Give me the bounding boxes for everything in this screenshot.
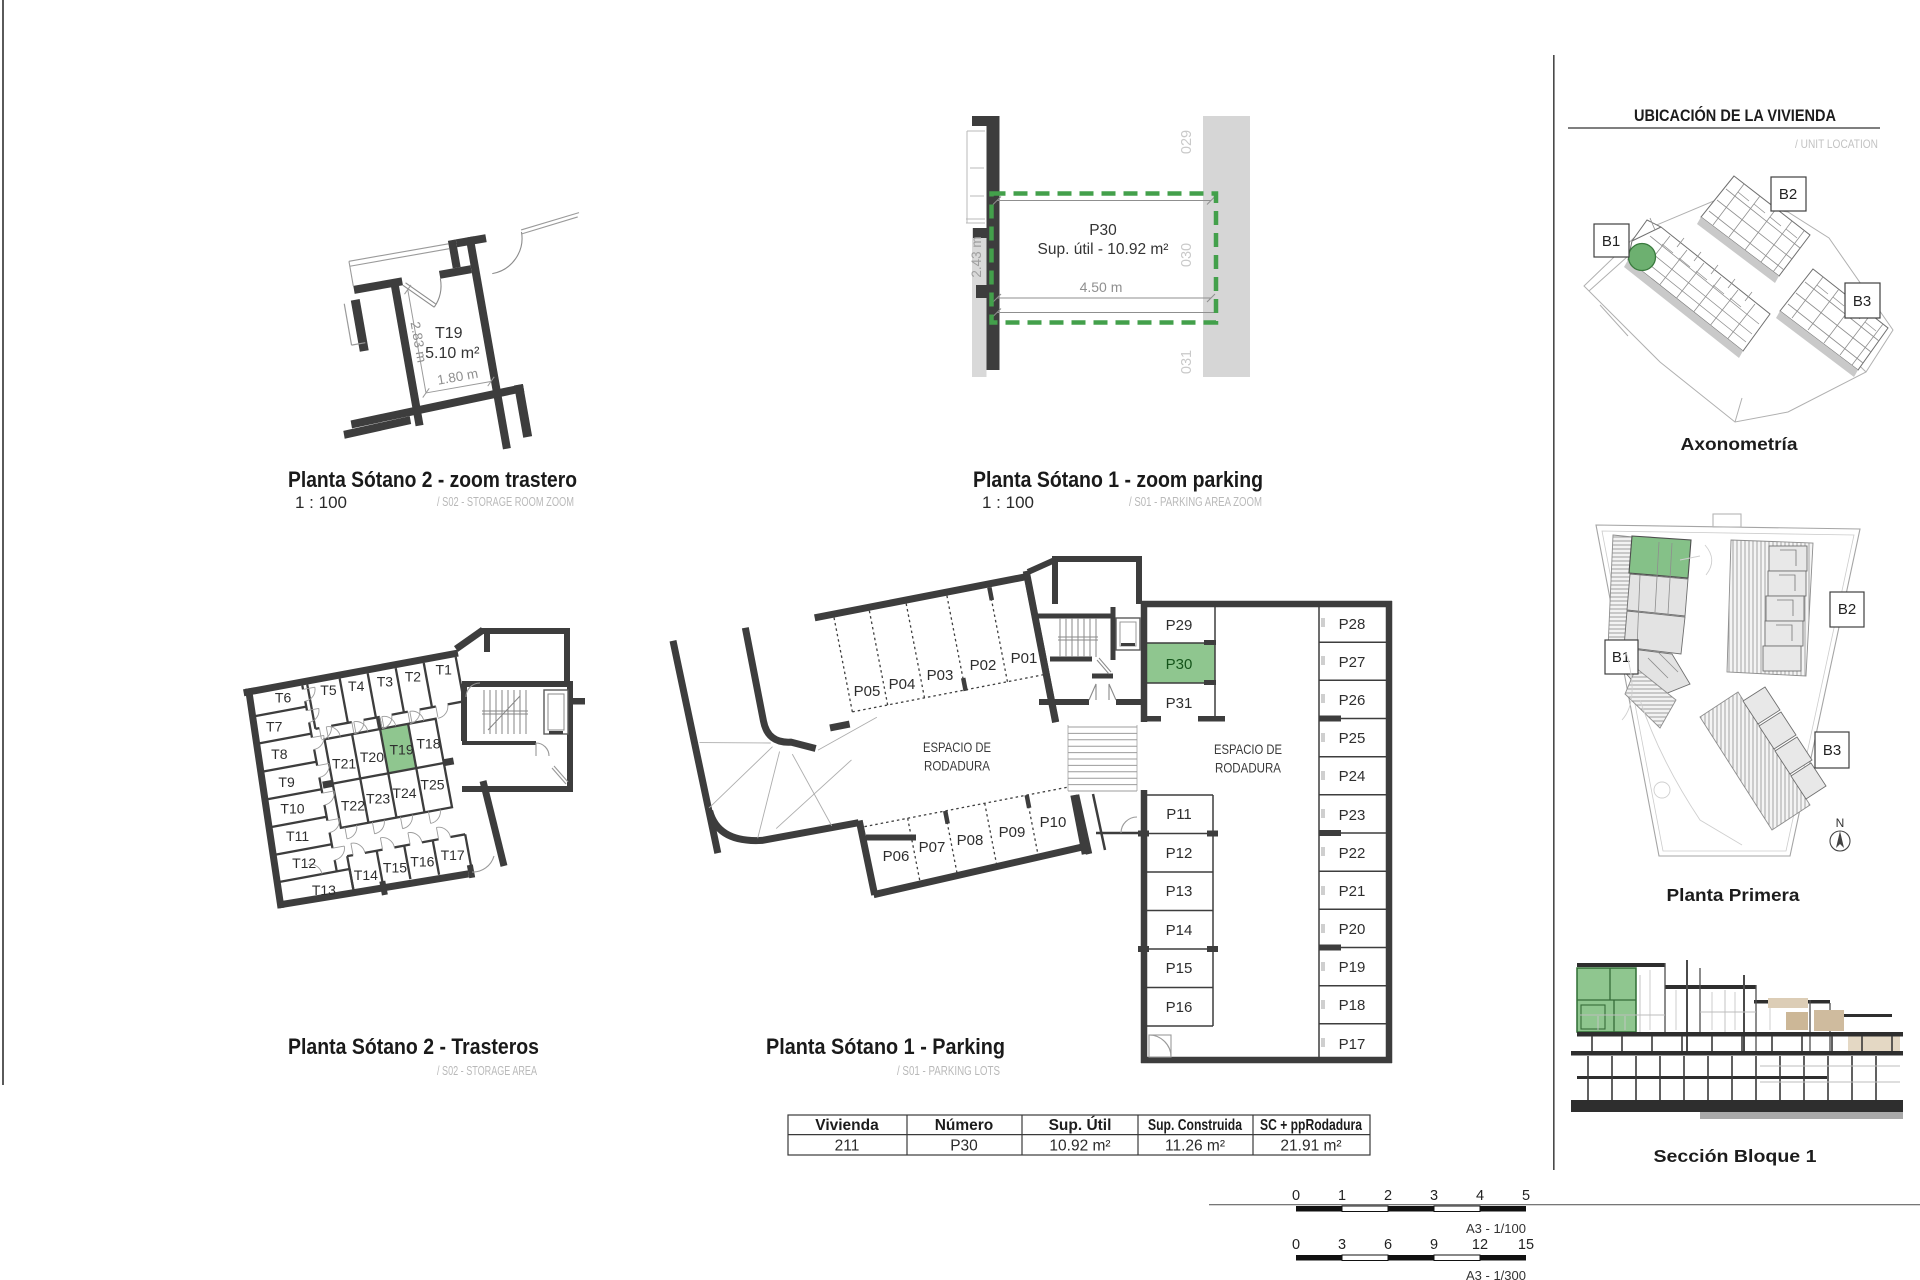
svg-text:P25: P25 — [1339, 730, 1366, 747]
svg-text:/ S01 - PARKING LOTS: / S01 - PARKING LOTS — [897, 1064, 1000, 1078]
svg-text:031: 031 — [1179, 350, 1195, 374]
svg-text:P16: P16 — [1166, 999, 1193, 1016]
svg-text:Número: Número — [935, 1117, 994, 1134]
svg-text:3: 3 — [1338, 1237, 1346, 1253]
svg-text:1 : 100: 1 : 100 — [295, 493, 347, 512]
svg-text:T6: T6 — [275, 689, 292, 705]
svg-text:2.43 m: 2.43 m — [969, 236, 984, 277]
svg-text:/ S02 - STORAGE ROOM ZOOM: / S02 - STORAGE ROOM ZOOM — [437, 495, 574, 509]
svg-text:211: 211 — [835, 1138, 860, 1155]
svg-text:0: 0 — [1292, 1188, 1300, 1204]
svg-text:5.10 m²: 5.10 m² — [425, 345, 480, 362]
svg-text:P03: P03 — [927, 667, 954, 684]
svg-text:P05: P05 — [854, 683, 881, 700]
svg-text:RODADURA: RODADURA — [924, 758, 991, 774]
svg-text:Sup. útil - 10.92 m²: Sup. útil - 10.92 m² — [1038, 241, 1169, 258]
svg-text:P19: P19 — [1339, 959, 1366, 976]
svg-text:2: 2 — [1384, 1188, 1392, 1204]
svg-text:3: 3 — [1430, 1188, 1438, 1204]
svg-text:SC + ppRodadura: SC + ppRodadura — [1260, 1117, 1362, 1134]
svg-text:T9: T9 — [278, 774, 295, 790]
svg-text:T21: T21 — [332, 755, 356, 771]
svg-text:T2: T2 — [405, 668, 422, 684]
svg-text:/ UNIT LOCATION: / UNIT LOCATION — [1795, 137, 1878, 151]
svg-text:T10: T10 — [280, 800, 304, 816]
svg-text:A3 - 1/100: A3 - 1/100 — [1466, 1221, 1526, 1236]
svg-text:P30: P30 — [1166, 656, 1193, 673]
svg-text:P20: P20 — [1339, 921, 1366, 938]
svg-text:15: 15 — [1518, 1237, 1534, 1253]
svg-text:P07: P07 — [919, 839, 946, 856]
svg-text:P29: P29 — [1166, 617, 1193, 634]
svg-text:P30: P30 — [1089, 222, 1117, 239]
svg-text:B2: B2 — [1779, 186, 1797, 203]
svg-text:P30: P30 — [950, 1138, 978, 1155]
svg-text:T16: T16 — [410, 854, 434, 870]
svg-text:T15: T15 — [383, 860, 407, 876]
svg-text:Sup. Construida: Sup. Construida — [1148, 1117, 1242, 1134]
svg-text:T24: T24 — [392, 785, 416, 801]
svg-text:P17: P17 — [1339, 1036, 1366, 1053]
svg-text:ESPACIO DE: ESPACIO DE — [923, 739, 991, 755]
svg-text:T7: T7 — [266, 718, 283, 734]
svg-text:P04: P04 — [889, 676, 916, 693]
svg-text:A3 - 1/300: A3 - 1/300 — [1466, 1268, 1526, 1280]
svg-text:T5: T5 — [320, 682, 337, 698]
svg-text:9: 9 — [1430, 1237, 1438, 1253]
svg-text:6: 6 — [1384, 1237, 1392, 1253]
svg-text:Planta Sótano 1 - Parking: Planta Sótano 1 - Parking — [766, 1034, 1005, 1059]
svg-text:B1: B1 — [1602, 233, 1620, 250]
svg-text:P10: P10 — [1040, 814, 1067, 831]
svg-text:P22: P22 — [1339, 845, 1366, 862]
svg-text:P02: P02 — [970, 657, 997, 674]
svg-text:T18: T18 — [416, 736, 440, 752]
svg-text:1: 1 — [1338, 1188, 1346, 1204]
svg-text:P09: P09 — [999, 824, 1026, 841]
svg-text:Planta Primera: Planta Primera — [1667, 885, 1800, 905]
svg-text:P06: P06 — [883, 848, 910, 865]
svg-text:T25: T25 — [420, 777, 444, 793]
svg-text:030: 030 — [1179, 243, 1195, 267]
svg-text:T19: T19 — [435, 325, 463, 342]
svg-text:P31: P31 — [1166, 695, 1193, 712]
svg-text:029: 029 — [1179, 130, 1195, 154]
svg-text:P18: P18 — [1339, 997, 1366, 1014]
svg-text:T22: T22 — [341, 797, 365, 813]
svg-text:T8: T8 — [271, 746, 288, 762]
svg-text:4: 4 — [1476, 1188, 1484, 1204]
svg-text:P15: P15 — [1166, 960, 1193, 977]
svg-text:1 : 100: 1 : 100 — [982, 493, 1034, 512]
svg-text:Planta Sótano 2 - zoom traster: Planta Sótano 2 - zoom trastero — [288, 467, 577, 492]
svg-text:P01: P01 — [1011, 650, 1038, 667]
svg-text:Axonometría: Axonometría — [1681, 434, 1798, 454]
svg-text:T14: T14 — [354, 867, 378, 883]
svg-text:B3: B3 — [1823, 742, 1841, 759]
svg-text:10.92 m²: 10.92 m² — [1049, 1138, 1110, 1155]
svg-text:P24: P24 — [1339, 768, 1366, 785]
svg-text:P21: P21 — [1339, 883, 1366, 900]
svg-text:P08: P08 — [957, 832, 984, 849]
svg-text:4.50 m: 4.50 m — [1080, 279, 1123, 295]
svg-text:N: N — [1836, 816, 1845, 830]
svg-text:Planta Sótano 1 - zoom parking: Planta Sótano 1 - zoom parking — [973, 467, 1263, 492]
svg-text:P14: P14 — [1166, 922, 1193, 939]
svg-text:T13: T13 — [312, 882, 336, 898]
svg-text:T23: T23 — [366, 791, 390, 807]
svg-text:P28: P28 — [1339, 616, 1366, 633]
svg-text:/ S01 - PARKING AREA ZOOM: / S01 - PARKING AREA ZOOM — [1129, 495, 1262, 509]
svg-text:T3: T3 — [377, 673, 394, 689]
svg-text:ESPACIO DE: ESPACIO DE — [1214, 741, 1282, 757]
svg-text:T1: T1 — [436, 662, 453, 678]
svg-text:P11: P11 — [1166, 806, 1192, 823]
svg-text:21.91 m²: 21.91 m² — [1280, 1138, 1341, 1155]
svg-text:Sección Bloque 1: Sección Bloque 1 — [1654, 1146, 1817, 1166]
svg-text:/ S02 - STORAGE AREA: / S02 - STORAGE AREA — [437, 1064, 537, 1078]
svg-text:11.26 m²: 11.26 m² — [1165, 1138, 1225, 1155]
svg-text:Sup. Útil: Sup. Útil — [1049, 1116, 1112, 1134]
svg-text:T11: T11 — [286, 828, 309, 844]
svg-text:P23: P23 — [1339, 807, 1366, 824]
svg-text:UBICACIÓN DE LA VIVIENDA: UBICACIÓN DE LA VIVIENDA — [1634, 106, 1836, 125]
svg-text:P13: P13 — [1166, 883, 1193, 900]
svg-text:Vivienda: Vivienda — [815, 1117, 879, 1134]
svg-text:P27: P27 — [1339, 654, 1366, 671]
svg-text:P26: P26 — [1339, 692, 1366, 709]
svg-text:T17: T17 — [441, 847, 465, 863]
svg-text:T20: T20 — [360, 749, 384, 765]
svg-text:B2: B2 — [1838, 601, 1856, 618]
svg-text:P12: P12 — [1166, 845, 1193, 862]
svg-text:0: 0 — [1292, 1237, 1300, 1253]
svg-text:B3: B3 — [1853, 293, 1871, 310]
svg-text:T19: T19 — [390, 742, 414, 758]
svg-text:12: 12 — [1472, 1237, 1488, 1253]
svg-text:T12: T12 — [292, 855, 316, 871]
svg-text:5: 5 — [1522, 1188, 1530, 1204]
svg-text:RODADURA: RODADURA — [1215, 760, 1282, 776]
svg-text:T4: T4 — [348, 678, 365, 694]
svg-text:Planta Sótano 2 - Trasteros: Planta Sótano 2 - Trasteros — [288, 1034, 539, 1059]
